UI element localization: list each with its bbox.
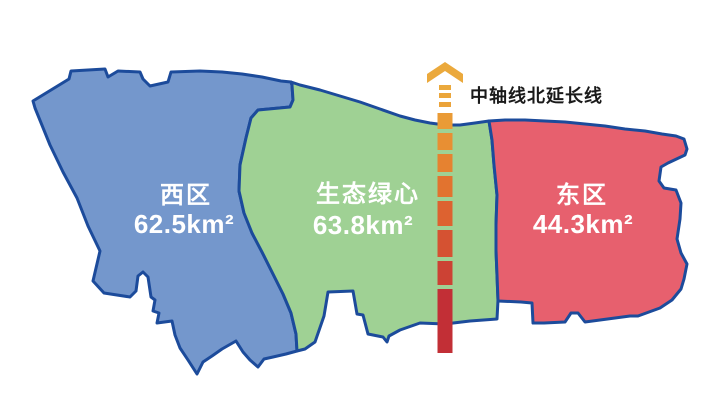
axis-dash (438, 176, 453, 197)
region-label-east-area: 44.3km² (533, 211, 633, 237)
axis-dash (438, 230, 453, 257)
region-label-west-name: 西区 (160, 184, 212, 208)
region-label-west-area: 62.5km² (134, 211, 234, 237)
axis-dash (438, 113, 453, 129)
axis-dash (438, 289, 453, 353)
region-label-green-heart-name: 生态绿心 (316, 183, 420, 207)
region-label-east-name: 东区 (556, 184, 608, 208)
axis-dash (439, 93, 451, 98)
region-label-green-heart-area: 63.8km² (313, 212, 413, 238)
axis-dash (439, 85, 451, 90)
axis-dash (438, 261, 453, 285)
axis-dash (438, 133, 453, 150)
map-canvas: 中轴线北延长线 西区 62.5km² 生态绿心 63.8km² 东区 44.3k… (0, 0, 718, 407)
axis-label: 中轴线北延长线 (470, 82, 603, 108)
up-arrow-chevron-icon (427, 62, 463, 83)
axis-dash (438, 201, 453, 226)
axis-dash (438, 154, 453, 172)
axis-dash (439, 102, 451, 107)
axis-line (438, 85, 453, 353)
